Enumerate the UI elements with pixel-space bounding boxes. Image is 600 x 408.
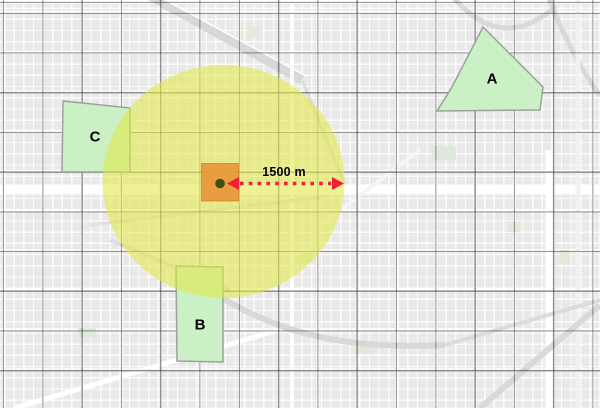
zone-c-label: C (90, 129, 101, 146)
zone-a-polygon[interactable] (437, 27, 543, 111)
center-point[interactable] (215, 179, 225, 189)
distance-label: 1500 m (262, 165, 306, 179)
zone-a-label: A (487, 71, 498, 88)
zone-b-label: B (195, 317, 206, 334)
map-canvas[interactable]: A B C 1500 m (0, 0, 600, 408)
analysis-overlay (0, 0, 600, 408)
